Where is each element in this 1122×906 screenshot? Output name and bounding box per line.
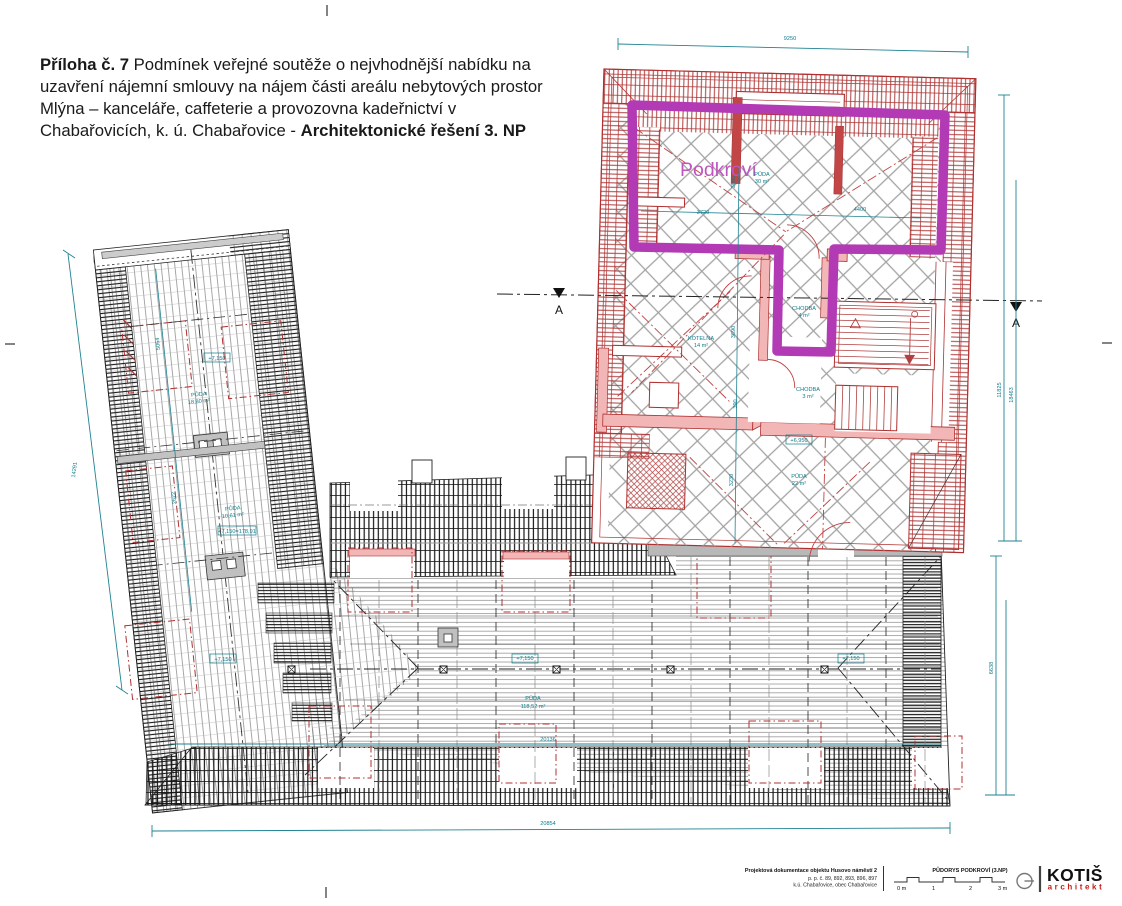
svg-text:uzavření nájemní smlouvy na ná: uzavření nájemní smlouvy na nájem části … [40,77,543,96]
svg-text:3230: 3230 [729,474,735,486]
svg-text:14 m²: 14 m² [694,343,708,349]
svg-text:20854: 20854 [540,821,556,827]
svg-text:k.ú. Chabařovice, obec Chabařo: k.ú. Chabařovice, obec Chabařovice [793,883,877,889]
svg-text:11825: 11825 [997,382,1003,397]
svg-text:+7,150: +7,150 [842,656,859,662]
svg-text:architekt: architekt [1048,883,1105,892]
svg-text:9250: 9250 [784,36,796,42]
svg-text:22 m²: 22 m² [792,481,806,487]
svg-text:3720: 3720 [697,210,709,216]
svg-text:p. p. č. 89, 892, 893, 896, 89: p. p. č. 89, 892, 893, 896, 897 [808,876,877,882]
svg-text:6638: 6638 [989,662,995,674]
svg-text:118,52 m²: 118,52 m² [521,704,546,710]
svg-text:CHODBA: CHODBA [792,306,816,312]
svg-text:3690: 3690 [731,326,737,338]
svg-text:20136: 20136 [540,737,556,743]
svg-text:PŮDORYS PODKROVÍ (3.NP): PŮDORYS PODKROVÍ (3.NP) [932,866,1007,874]
svg-text:Mlýna – kanceláře, caffeterie: Mlýna – kanceláře, caffeterie a provozov… [40,99,457,118]
svg-text:2: 2 [969,886,972,892]
svg-text:A: A [555,303,563,317]
svg-text:3885: 3885 [731,176,737,188]
svg-text:Chabařovicích, k. ú. Chabařovi: Chabařovicích, k. ú. Chabařovice - Archi… [40,121,526,140]
svg-text:+7,150: +7,150 [214,657,231,663]
svg-text:CHODBA: CHODBA [796,387,820,393]
svg-text:Příloha č. 7 Podmínek veřejné: Příloha č. 7 Podmínek veřejné soutěže o … [40,55,531,74]
svg-text:PŮDA: PŮDA [791,473,807,480]
svg-text:3 m: 3 m [998,886,1008,892]
svg-text:Podkroví: Podkroví [680,159,758,181]
svg-text:1: 1 [932,886,935,892]
svg-text:+7,150: +7,150 [208,356,225,362]
svg-text:PŮDA: PŮDA [525,695,541,702]
svg-text:Projektová dokumentace objektu: Projektová dokumentace objektu Husovo ná… [745,868,877,874]
svg-text:4400: 4400 [854,207,866,213]
svg-text:30 m²: 30 m² [755,179,769,185]
svg-text:0 m: 0 m [897,886,907,892]
svg-text:390: 390 [733,399,739,408]
svg-text:+7,150=178,91: +7,150=178,91 [218,529,256,535]
svg-text:+7,150: +7,150 [516,656,533,662]
svg-text:+6,950: +6,950 [790,438,807,444]
svg-text:3 m²: 3 m² [802,394,813,400]
svg-text:KOTELNA: KOTELNA [688,336,714,342]
svg-text:4 m²: 4 m² [798,313,809,319]
svg-text:18463: 18463 [1009,387,1015,403]
svg-text:PŮDA: PŮDA [754,171,770,178]
